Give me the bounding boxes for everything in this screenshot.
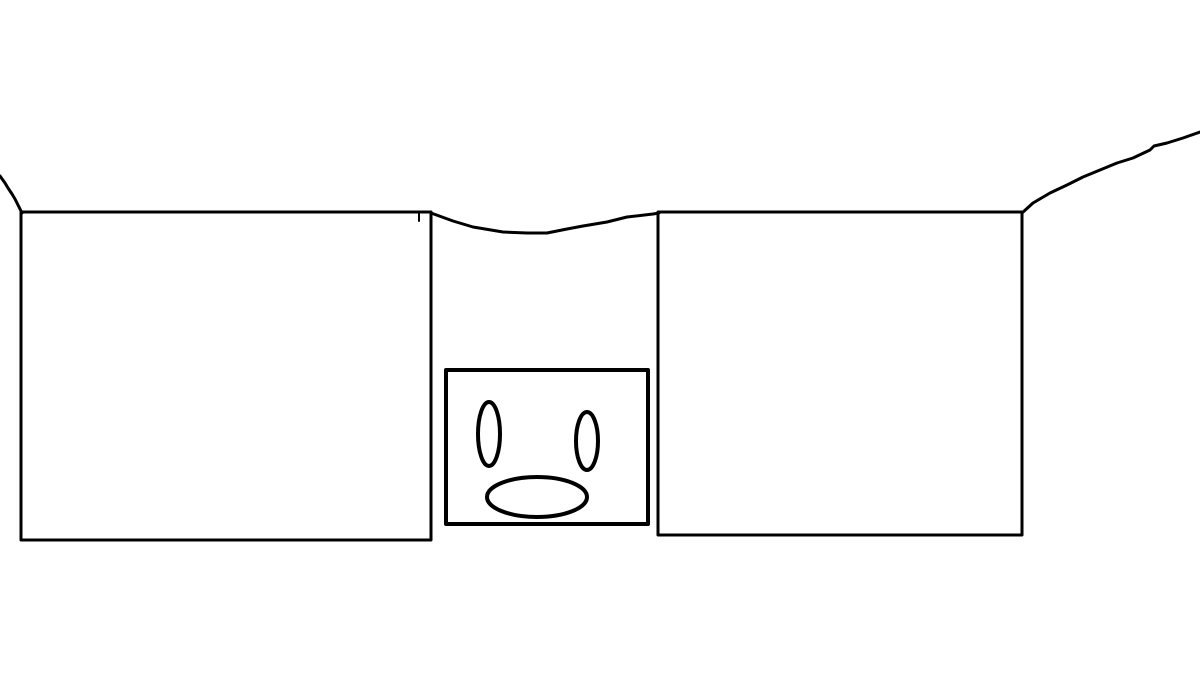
drawing-canvas xyxy=(0,0,1200,676)
left-large-rectangle xyxy=(21,212,431,540)
center-dip-line xyxy=(431,213,659,233)
face-box-rectangle xyxy=(446,370,648,524)
right-large-rectangle xyxy=(658,212,1022,535)
right-rising-curve xyxy=(1022,132,1200,213)
face-left-eye xyxy=(478,402,500,466)
face-right-eye xyxy=(576,412,598,470)
drawing-svg xyxy=(0,0,1200,676)
face-mouth xyxy=(487,477,587,517)
top-left-squiggle xyxy=(0,176,22,213)
